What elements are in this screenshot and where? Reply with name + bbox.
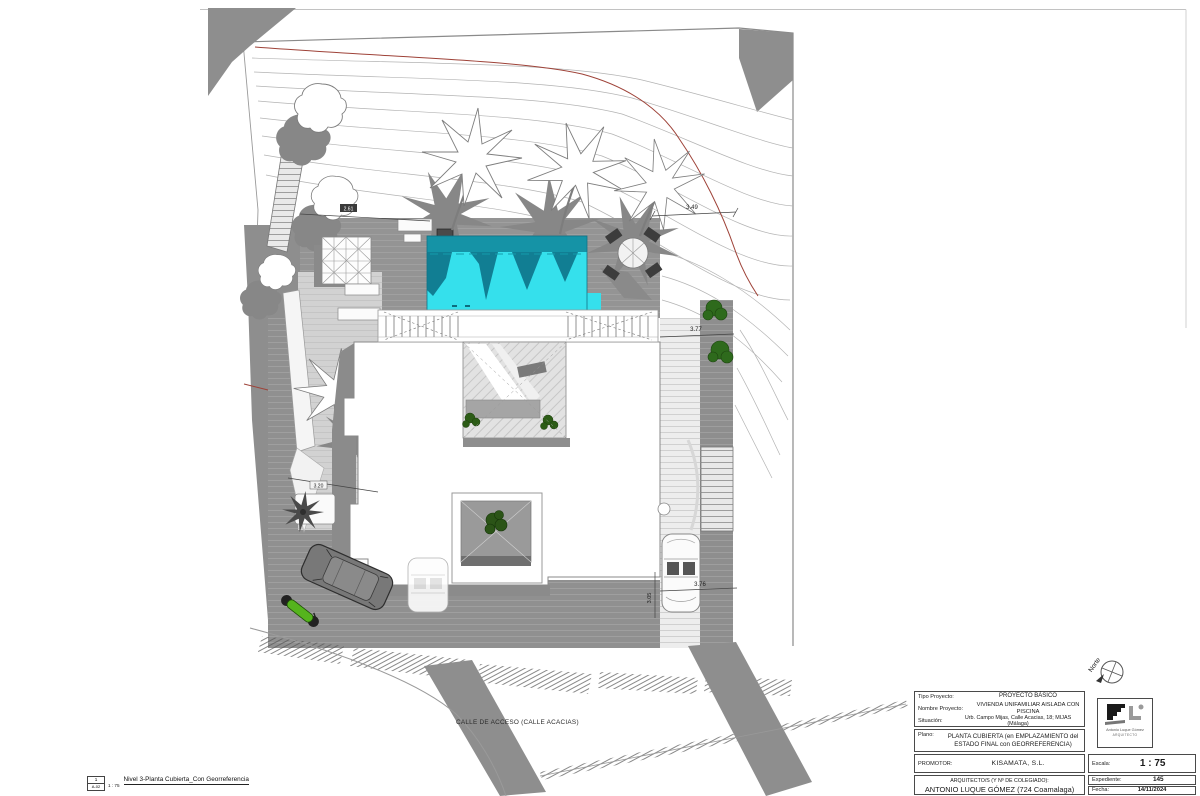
nombre-proyecto-value: VIVIENDA UNIFAMILIAR AISLADA CON PISCINA (972, 702, 1084, 715)
pool-top-shadow (427, 236, 587, 252)
fecha-value: 14/11/2024 (1109, 787, 1195, 794)
svg-text:3.76: 3.76 (694, 582, 706, 588)
convertible-car (662, 534, 700, 612)
site-plan-drawing: 3.49 3.77 2.61 3.20 3.76 3.05 (0, 0, 1200, 796)
escala-label: Escala: (1089, 761, 1110, 767)
svg-text:3.20: 3.20 (314, 484, 324, 490)
fecha-box: Fecha: 14/11/2024 (1088, 786, 1196, 796)
round-tree (295, 84, 347, 133)
roof-plan (332, 310, 660, 596)
promotor-label: PROMOTOR: (915, 761, 952, 767)
legend-number: 1 (88, 777, 104, 784)
svg-text:3.77: 3.77 (690, 327, 702, 333)
expediente-value: 145 (1122, 776, 1195, 783)
svg-text:3.49: 3.49 (686, 205, 698, 211)
situacion-label: Situación: (915, 718, 952, 724)
street-shadow (688, 642, 812, 796)
tipo-proyecto-value: PROYECTO BÁSICO (972, 693, 1084, 700)
fecha-label: Fecha: (1089, 787, 1109, 793)
terrain-mass-top-left (208, 8, 296, 96)
arquitecto-value: ANTONIO LUQUE GÓMEZ (724 Coamalaga) (915, 785, 1084, 794)
architect-logo-box: Antonio Luque Gómez ARQUITECTO (1097, 698, 1153, 748)
ghost-car (408, 558, 448, 612)
north-label: Norte (1087, 656, 1102, 673)
plano-value: PLANTA CUBIERTA (en EMPLAZAMIENTO del ES… (942, 733, 1084, 747)
svg-text:3.05: 3.05 (647, 593, 653, 604)
pool (427, 236, 601, 312)
tipo-proyecto-label: Tipo Proyecto: (915, 694, 972, 700)
arquitecto-box: ARQUITECTO/S (Y Nº DE COLEGIADO): ANTONI… (914, 775, 1085, 795)
logo-architect-role: ARQUITECTO (1098, 733, 1152, 737)
escala-box: Escala: 1 : 75 (1088, 754, 1196, 773)
logo-architect-name: Antonio Luque Gómez (1098, 728, 1152, 733)
promotor-box: PROMOTOR: KISAMATA, S.L. (914, 754, 1085, 773)
legend-chip: 1 A-02 (87, 776, 105, 791)
legend-sheet-code: A-02 (88, 784, 104, 790)
legend-title: Nivel 3-Planta Cubierta_Con Georreferenc… (124, 776, 249, 785)
nombre-proyecto-label: Nombre Proyecto: (915, 706, 972, 712)
pergola-grid (314, 237, 371, 287)
architect-logo-icon (1105, 702, 1145, 728)
street-edge (540, 704, 906, 776)
railing (378, 310, 658, 342)
expediente-label: Expediente: (1089, 777, 1122, 783)
escala-value: 1 : 75 (1110, 758, 1195, 770)
manhole (658, 503, 670, 515)
patio-skylight (452, 493, 542, 583)
expediente-box: Expediente: 145 (1088, 775, 1196, 785)
street-label: CALLE DE ACCESO (CALLE ACACIAS) (456, 719, 579, 726)
arquitecto-label: ARQUITECTO/S (Y Nº DE COLEGIADO): (915, 778, 1084, 784)
plano-label: Plano: (915, 730, 942, 738)
round-tree (311, 176, 358, 220)
svg-text:2.61: 2.61 (344, 207, 354, 213)
courtyard-opening (463, 342, 571, 447)
sheet: 3.49 3.77 2.61 3.20 3.76 3.05 (0, 0, 1200, 796)
plano-box: Plano: PLANTA CUBIERTA (en EMPLAZAMIENTO… (914, 729, 1085, 752)
promotor-value: KISAMATA, S.L. (952, 760, 1084, 768)
situacion-value: Urb. Campo Mijas, Calle Acacias, 18; MIJ… (952, 715, 1084, 727)
north-arrow: Norte (1087, 656, 1123, 683)
street-zone (250, 628, 908, 796)
drawing-legend: 1 A-02 1 : 75 Nivel 3-Planta Cubierta_Co… (87, 776, 249, 791)
embankment-hatch (258, 636, 908, 780)
project-info-box: Tipo Proyecto: PROYECTO BÁSICO Nombre Pr… (914, 691, 1085, 727)
terrain-mass-top-right (739, 29, 793, 112)
legend-scale: 1 : 75 (108, 783, 120, 788)
